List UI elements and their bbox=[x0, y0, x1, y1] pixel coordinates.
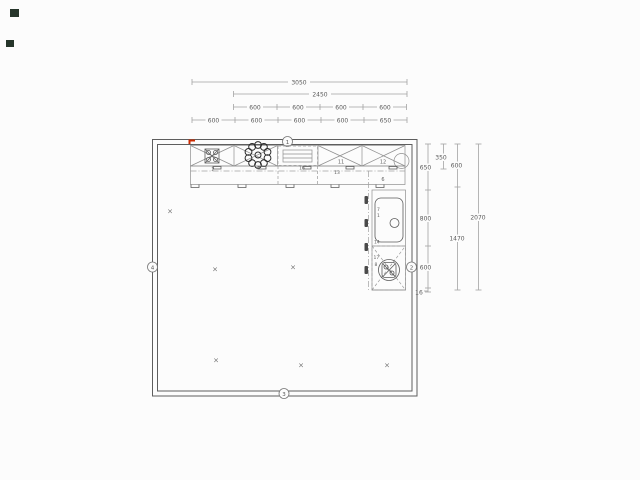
page-background bbox=[0, 0, 640, 480]
dim-mid-seg: 600 bbox=[451, 163, 463, 170]
dim-seg: 600 bbox=[335, 105, 347, 112]
dim-right-seg: 16 bbox=[415, 290, 423, 297]
floor-mark: × bbox=[290, 264, 296, 272]
item-label-corner-6: 6 bbox=[381, 177, 384, 183]
dim-run-width: 2450 bbox=[312, 92, 327, 99]
floor-mark: × bbox=[298, 362, 304, 370]
item-label-appliance-17: 17 bbox=[374, 255, 380, 261]
wall-marker-3: 3 bbox=[282, 392, 286, 398]
dim-seg: 600 bbox=[294, 118, 306, 125]
item-label-appliance-8: 8 bbox=[375, 262, 378, 268]
dim-right-seg: 600 bbox=[420, 265, 432, 272]
floor-mark: × bbox=[384, 362, 390, 370]
wall-marker-2: 2 bbox=[410, 265, 414, 271]
item-label-wall-cab-11: 11 bbox=[338, 160, 344, 166]
dim-seg: 600 bbox=[249, 105, 261, 112]
artifact-square-1 bbox=[10, 9, 19, 17]
dim-seg: 600 bbox=[208, 118, 220, 125]
dim-seg: 650 bbox=[380, 118, 392, 125]
dim-right-seg: 650 bbox=[420, 165, 432, 172]
wall-marker-1: 1 bbox=[286, 140, 290, 146]
dim-overall-height: 2070 bbox=[470, 215, 485, 222]
artifact-square-2 bbox=[6, 40, 14, 47]
floorplan-canvas: 3050 2450 600 600 600 600 600 600 bbox=[0, 0, 640, 480]
dim-seg: 600 bbox=[251, 118, 263, 125]
item-label-sink-14: 14 bbox=[374, 240, 380, 246]
wall-marker-4: 4 bbox=[151, 265, 155, 271]
fan-appliance-icon bbox=[379, 260, 400, 281]
dim-mid-seg: 1470 bbox=[449, 236, 464, 243]
dim-overall-width: 3050 bbox=[291, 80, 306, 87]
item-label-wall-cab-12: 12 bbox=[380, 160, 386, 166]
dim-seg: 600 bbox=[379, 105, 391, 112]
item-label-sink-7: 7 bbox=[377, 207, 380, 213]
dim-right-seg: 800 bbox=[420, 216, 432, 223]
dim-cabinet-depth: 350 bbox=[435, 155, 447, 162]
item-label-sink-1: 1 bbox=[377, 213, 380, 219]
dim-seg: 600 bbox=[292, 105, 304, 112]
dim-seg: 600 bbox=[337, 118, 349, 125]
floor-mark: × bbox=[212, 266, 218, 274]
item-label-base-13: 13 bbox=[334, 170, 340, 176]
floor-mark: × bbox=[213, 357, 219, 365]
floor-mark: × bbox=[167, 208, 173, 216]
